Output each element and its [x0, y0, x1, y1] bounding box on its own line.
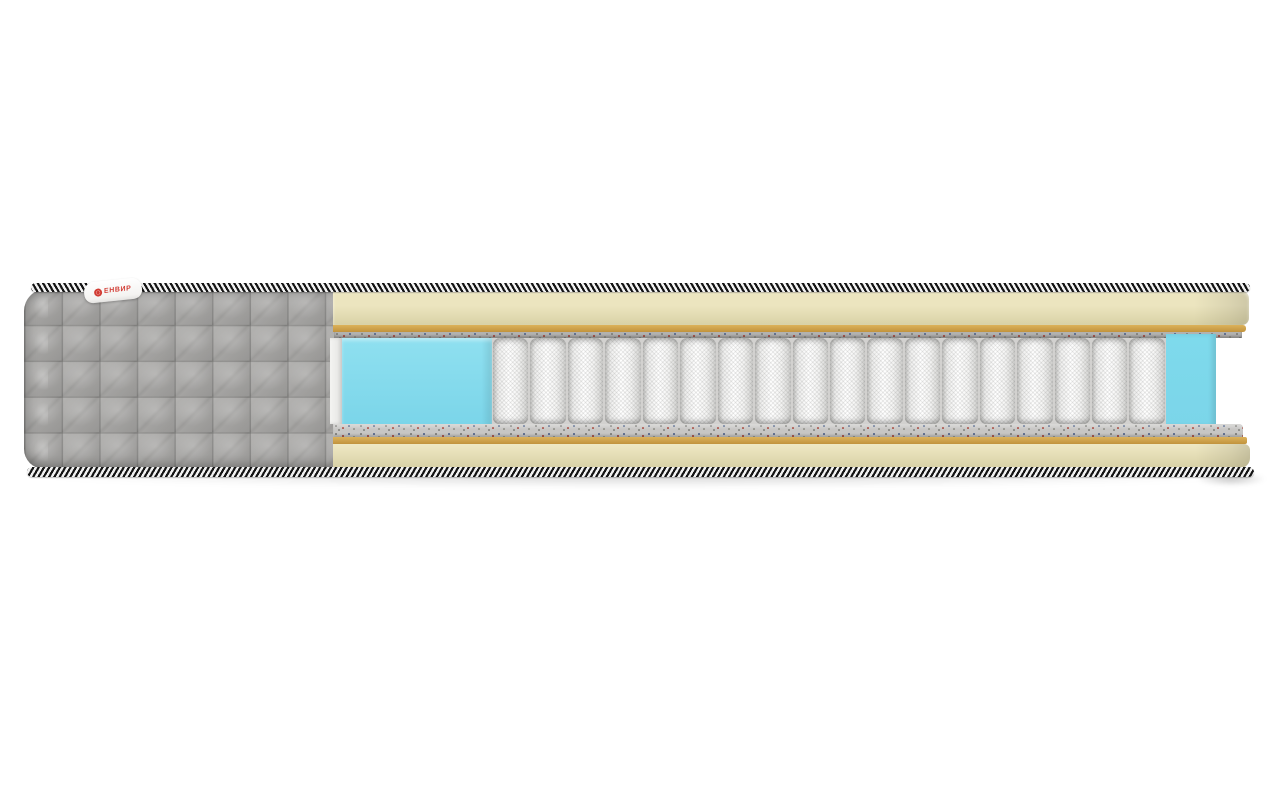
pocket-spring-row: [492, 338, 1166, 424]
brand-ring-icon: [94, 288, 103, 297]
pocket-spring: [867, 338, 902, 424]
layer-foam-top: [333, 290, 1249, 325]
braided-cord-bottom: [27, 467, 1254, 477]
pocket-spring: [530, 338, 565, 424]
spring-zone: [342, 338, 1216, 424]
edge-foam-right: [1166, 334, 1216, 426]
pocket-spring: [830, 338, 865, 424]
pocket-spring: [1055, 338, 1090, 424]
edge-foam-left: [342, 338, 492, 424]
layer-coir-bottom: [333, 437, 1247, 444]
layer-coir-top: [333, 325, 1246, 332]
pocket-spring: [905, 338, 940, 424]
braided-cord-top: [31, 283, 1250, 292]
pocket-spring: [605, 338, 640, 424]
pocket-spring: [643, 338, 678, 424]
scene-product-render: { "scene": { "description": "3D cutaway …: [0, 0, 1280, 800]
pocket-spring: [1092, 338, 1127, 424]
pocket-spring: [1129, 338, 1164, 424]
pocket-spring: [680, 338, 715, 424]
cover-cut-edge: [330, 338, 342, 424]
pocket-spring: [493, 338, 528, 424]
pocket-spring: [980, 338, 1015, 424]
brand-tag-label: ЕНВИР: [104, 285, 131, 295]
layer-foam-bottom: [333, 444, 1250, 468]
pocket-spring: [718, 338, 753, 424]
quilted-cover: [24, 289, 335, 469]
pocket-spring: [942, 338, 977, 424]
pocket-spring: [755, 338, 790, 424]
pocket-spring: [793, 338, 828, 424]
layer-felt-bottom: [333, 424, 1243, 437]
pocket-spring: [568, 338, 603, 424]
pocket-spring: [1017, 338, 1052, 424]
